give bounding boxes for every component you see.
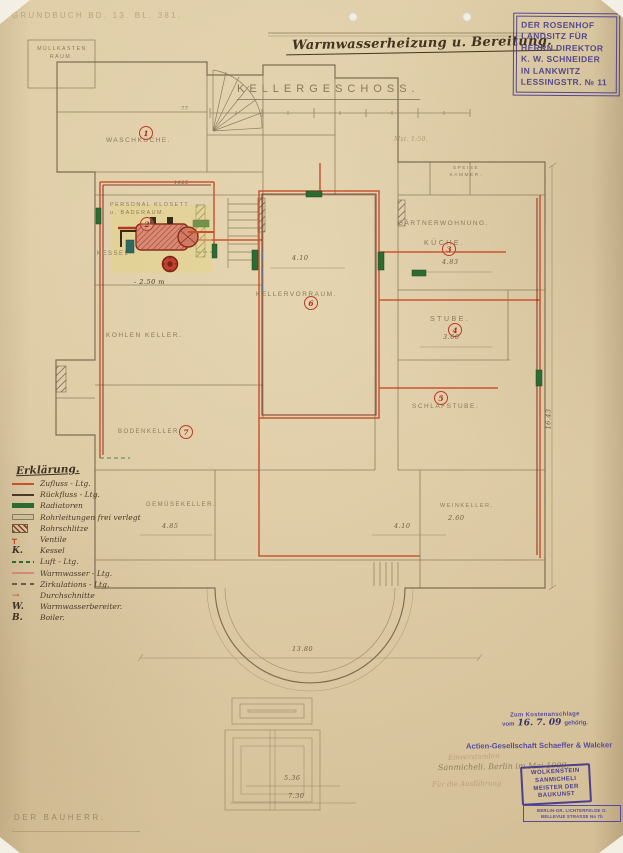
valve-symbol (12, 535, 34, 543)
kessel-letter-symbol: K. (12, 547, 34, 555)
legend-text: Boiler. (40, 613, 65, 622)
master-builder-stamp: WOLKENSTEIN SANMICHELI MEISTER DER BAUKU… (520, 763, 592, 806)
scale-bar (210, 108, 470, 118)
boiler-letter-symbol: B. (12, 614, 34, 622)
legend-row: Zufluss - Ltg. (12, 479, 144, 488)
room-number-2: 2 (140, 217, 154, 231)
legend-row: Warmwasser - Ltg. (12, 569, 144, 578)
dim-overall-height: 16.43 (545, 408, 553, 429)
legend: Erklärung. Zufluss - Ltg. Rückfluss - Lt… (12, 463, 144, 624)
cost-stamp-vom: vom (502, 722, 514, 728)
cost-stamp-date: 16. 7. 09 (517, 718, 561, 729)
room-label-speisekammer: SPEISE KAMMER. (446, 166, 486, 180)
legend-text: Rohrschlitze (40, 524, 88, 533)
room-label-kellervorraum: KELLERVORRAUM. (256, 290, 337, 299)
room-label-schlafstube: SCHLAFSTUBE. (412, 402, 479, 411)
circulation-line-symbol (12, 580, 34, 588)
room-number-6: 6 (304, 296, 318, 310)
legend-row: Rückfluss - Ltg. (12, 490, 144, 499)
grundbuch-note: GRUNDBUCH BD. 13. BL. 381. (12, 10, 182, 22)
pipe-chase-symbol (12, 524, 34, 532)
dim-tick-mark: 77 (181, 106, 188, 112)
legend-text: Rückfluss - Ltg. (40, 490, 100, 499)
water-heater-letter-symbol: W. (12, 603, 34, 611)
dim-stube-width: 3.60 (443, 333, 459, 341)
legend-text: Ventile (40, 535, 67, 544)
bauherr-label: DER BAUHERR. (14, 812, 106, 824)
legend-text: Zufluss - Ltg. (40, 479, 91, 488)
radiator-symbol (12, 502, 34, 510)
signature-line (12, 831, 140, 832)
legend-text: Luft - Ltg. (40, 557, 79, 566)
dim-bottom-right-width: 4.10 (394, 522, 410, 530)
cost-estimate-stamp: Zum Kostenanschlage vom 16. 7. 09 gehöri… (499, 711, 591, 729)
dim-gemuese-width: 4.85 (162, 522, 178, 530)
room-label-kohlenkeller: KOHLEN KELLER. (106, 331, 182, 340)
owner-stamp: DER ROSENHOF LANDSITZ FÜR HERRN DIREKTOR… (513, 13, 621, 97)
legend-row: Zirkulations - Ltg. (12, 580, 144, 589)
address-stamp-line: BELLEVUE STRASSE No 7b (526, 814, 618, 820)
dim-boiler-level: - 2.50 m (134, 278, 165, 286)
dim-wein-width: 2.60 (448, 514, 464, 522)
legend-row: W.Warmwasserbereiter. (12, 602, 144, 611)
dim-overall-width: 13.80 (292, 645, 313, 653)
mounting-hole (348, 12, 358, 22)
flow-line-symbol (12, 480, 34, 488)
legend-row: Rohrschlitze (12, 524, 144, 533)
room-label-personal-klosett: PERSONAL KLOSETT u. BADERAUM. (110, 202, 189, 218)
legend-row: K.Kessel (12, 546, 144, 555)
legend-text: Warmwasserbereiter. (40, 602, 122, 611)
legend-text: Zirkulations - Ltg. (40, 580, 109, 589)
dim-steps-1: 5.36 (284, 774, 300, 782)
dim-steps-2: 7.30 (288, 792, 304, 800)
section-arrow-symbol (12, 591, 34, 599)
boiler-fitting (167, 217, 173, 224)
room-label-gaertnerwohnung: GÄRTNERWOHNUNG. (398, 219, 489, 228)
legend-row: Radiatoren (12, 501, 144, 510)
room-label-weinkeller: WEINKELLER. (440, 503, 493, 511)
legend-row: Ventile (12, 535, 144, 544)
owner-stamp-line: LESSINGSTR. № 11 (521, 77, 612, 89)
air-line-symbol (12, 558, 34, 566)
scale-note: Mst. 1:50. (394, 136, 428, 145)
scanned-architectural-plan: { "page": { "grundbuch_note": "GRUNDBUCH… (0, 0, 623, 853)
room-label-kessel: KESSEL (97, 250, 129, 259)
owner-stamp-line: LANDSITZ FÜR (521, 31, 612, 43)
exposed-pipe-symbol (12, 513, 34, 521)
legend-row: Durchschnitte (12, 591, 144, 600)
legend-row: B.Boiler. (12, 613, 144, 622)
legend-text: Warmwasser - Ltg. (40, 569, 112, 578)
address-stamp-line: BERLIN-GR. LICHTERFELDE O. (526, 808, 618, 814)
hatched-walls (56, 198, 405, 392)
room-label-bodenkeller: BODENKELLER. (118, 428, 182, 437)
return-line-symbol (12, 491, 34, 499)
legend-text: Radiatoren (40, 501, 83, 510)
legend-text: Kessel (40, 546, 65, 555)
owner-stamp-line: K. W. SCHNEIDER (521, 54, 612, 66)
room-label-gemuesekeller: GEMÜSEKELLER. (146, 501, 216, 510)
legend-text: Durchschnitte (40, 591, 95, 600)
room-label-waschkueche: WASCHKÜCHE. (106, 136, 171, 145)
dim-pipe-mark: 1025 (174, 180, 189, 186)
room-label-muellkasten: MÜLLKASTEN RAUM. (36, 46, 88, 61)
pencil-note-execution: Für die Ausführung (432, 779, 502, 788)
dim-hall-width: 4.10 (292, 254, 308, 262)
legend-text: Rohrleitungen frei verlegt (40, 513, 141, 522)
hot-water-line-symbol (12, 569, 34, 577)
room-number-3: 3 (442, 242, 456, 256)
room-number-1: 1 (139, 126, 153, 140)
owner-stamp-line: DER ROSENHOF (521, 20, 612, 32)
dim-kueche-width: 4.83 (442, 258, 458, 266)
room-number-7: 7 (179, 425, 193, 439)
legend-title: Erklärung. (16, 461, 144, 477)
floor-heading: KELLERGESCHOSS. (237, 82, 420, 100)
legend-row: Luft - Ltg. (12, 557, 144, 566)
address-stamp: BERLIN-GR. LICHTERFELDE O. BELLEVUE STRA… (523, 805, 621, 822)
stairs (213, 70, 398, 586)
mounting-hole (462, 12, 472, 22)
legend-row: Rohrleitungen frei verlegt (12, 513, 144, 522)
firm-stamp: Actien-Gesellschaft Schaeffer & Walcker (466, 740, 612, 750)
owner-stamp-line: HERRN DIREKTOR (521, 43, 612, 55)
cost-stamp-line2: gehörig. (564, 720, 588, 726)
owner-stamp-line: IN LANKWITZ (521, 66, 612, 78)
room-number-5: 5 (434, 391, 448, 405)
